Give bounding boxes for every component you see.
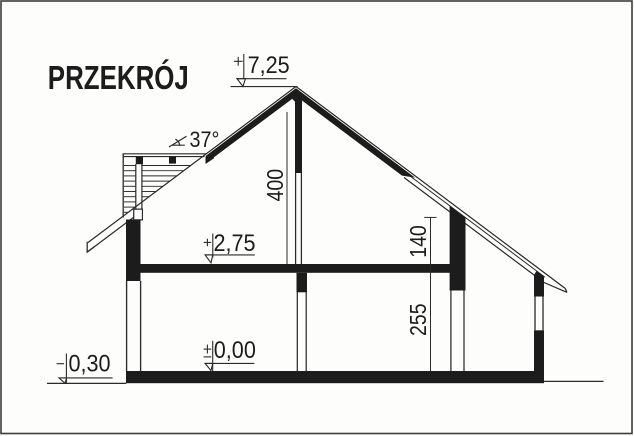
- svg-text:0,00: 0,00: [214, 336, 256, 363]
- svg-text:255: 255: [406, 303, 432, 336]
- svg-text:PRZEKRÓJ: PRZEKRÓJ: [48, 59, 189, 97]
- svg-text:0,30: 0,30: [69, 350, 111, 377]
- svg-text:400: 400: [263, 169, 289, 202]
- svg-text:7,25: 7,25: [248, 51, 290, 78]
- svg-text:2,75: 2,75: [214, 229, 256, 256]
- svg-text:140: 140: [406, 225, 432, 258]
- svg-text:37°: 37°: [190, 128, 220, 152]
